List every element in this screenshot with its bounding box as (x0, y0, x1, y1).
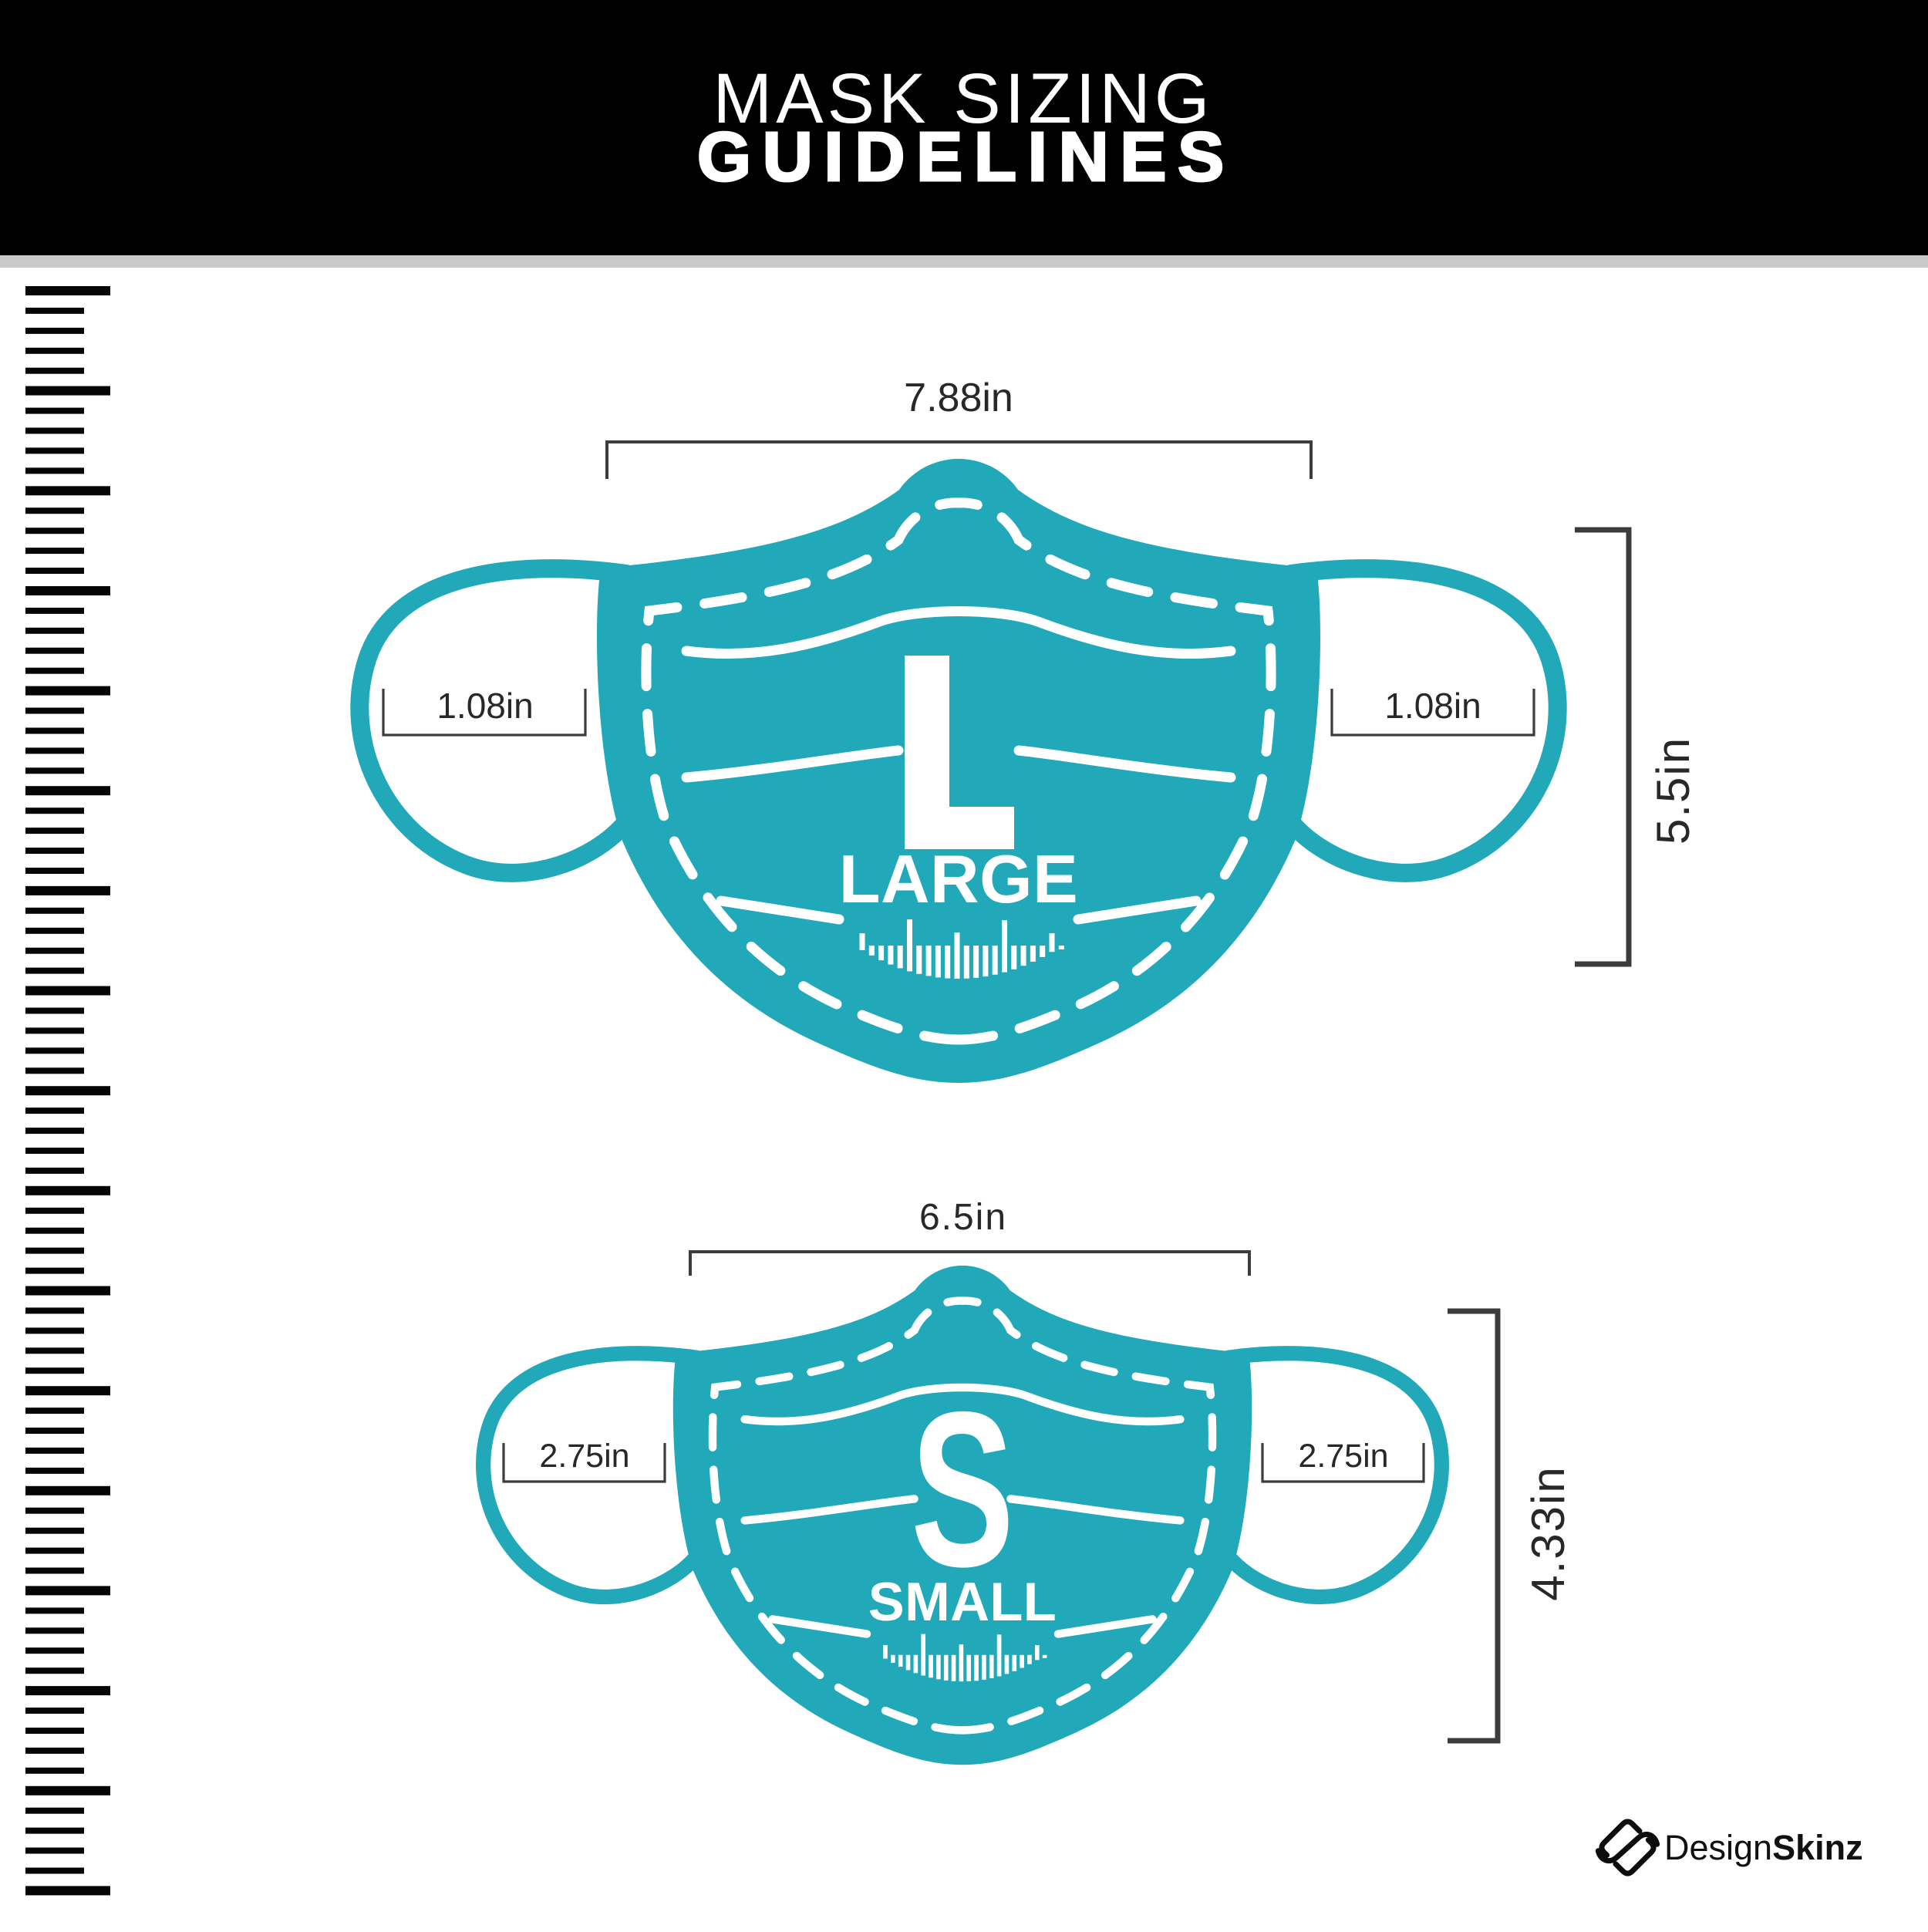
svg-text:4.33in: 4.33in (1522, 1465, 1574, 1600)
svg-text:2.75in: 2.75in (539, 1438, 629, 1475)
svg-text:5.5in: 5.5in (1647, 737, 1699, 845)
svg-text:LARGE: LARGE (839, 841, 1079, 917)
svg-text:2.75in: 2.75in (1298, 1438, 1388, 1475)
svg-text:SMALL: SMALL (868, 1571, 1057, 1632)
svg-text:6.5in: 6.5in (919, 1197, 1007, 1238)
svg-text:1.08in: 1.08in (1384, 686, 1481, 726)
svg-text:DesignSkinz: DesignSkinz (1664, 1828, 1863, 1867)
svg-text:1.08in: 1.08in (436, 686, 533, 726)
svg-text:7.88in: 7.88in (904, 376, 1013, 420)
svg-text:GUIDELINES: GUIDELINES (697, 119, 1235, 196)
